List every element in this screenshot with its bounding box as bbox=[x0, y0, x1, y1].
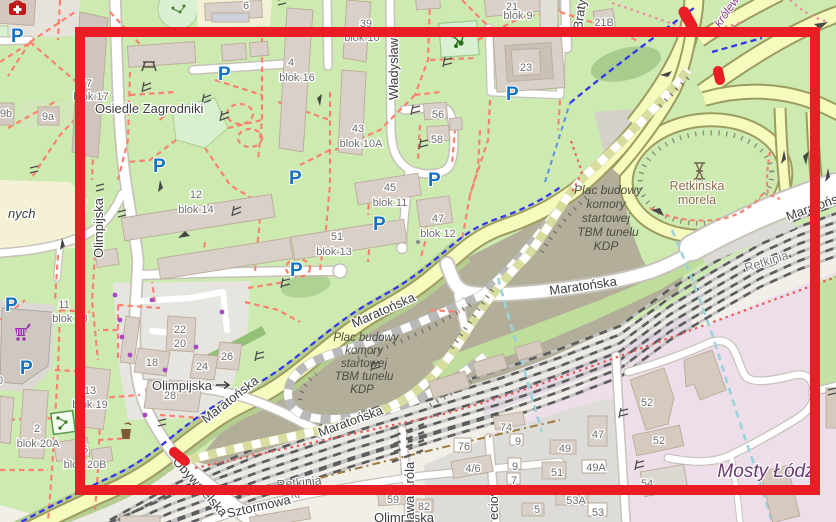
svg-text:P: P bbox=[428, 170, 441, 191]
svg-text:59: 59 bbox=[387, 494, 399, 506]
svg-text:Olimpijska: Olimpijska bbox=[91, 197, 106, 258]
svg-text:blok 10A: blok 10A bbox=[340, 138, 383, 150]
svg-text:Plac budowy: Plac budowy bbox=[333, 332, 399, 344]
svg-text:2: 2 bbox=[34, 423, 40, 435]
svg-text:23: 23 bbox=[520, 62, 532, 74]
svg-text:TBM tunelu: TBM tunelu bbox=[577, 225, 639, 239]
svg-text:Osiedle Zagrodniki: Osiedle Zagrodniki bbox=[95, 101, 203, 116]
svg-text:P: P bbox=[506, 84, 519, 105]
svg-text:52: 52 bbox=[641, 397, 653, 409]
svg-text:6: 6 bbox=[243, 0, 249, 12]
svg-text:9: 9 bbox=[512, 461, 518, 473]
svg-text:58: 58 bbox=[431, 134, 443, 146]
svg-text:P: P bbox=[20, 358, 33, 379]
svg-text:blok 13: blok 13 bbox=[316, 246, 351, 258]
svg-text:blok 14: blok 14 bbox=[178, 204, 213, 216]
svg-text:9a: 9a bbox=[42, 111, 55, 123]
svg-text:P: P bbox=[289, 168, 302, 189]
svg-text:P: P bbox=[11, 26, 24, 47]
svg-text:0: 0 bbox=[0, 375, 3, 387]
svg-text:47: 47 bbox=[592, 429, 604, 441]
svg-text:18: 18 bbox=[146, 357, 158, 369]
svg-text:12: 12 bbox=[190, 189, 202, 201]
svg-text:P: P bbox=[373, 214, 386, 235]
svg-text:13: 13 bbox=[84, 385, 96, 397]
svg-text:7: 7 bbox=[86, 78, 92, 90]
svg-text:blok 11: blok 11 bbox=[373, 197, 408, 209]
svg-text:45: 45 bbox=[384, 182, 396, 194]
svg-text:blok 12: blok 12 bbox=[420, 228, 455, 240]
svg-text:P: P bbox=[153, 156, 166, 177]
svg-text:26: 26 bbox=[221, 351, 233, 363]
svg-text:5: 5 bbox=[534, 504, 540, 516]
svg-text:Władysława: Władysława bbox=[386, 30, 401, 100]
svg-text:20: 20 bbox=[174, 338, 186, 350]
svg-text:56: 56 bbox=[432, 109, 444, 121]
svg-text:Mosty Łódź: Mosty Łódź bbox=[717, 461, 815, 482]
svg-text:43: 43 bbox=[352, 123, 364, 135]
svg-text:P: P bbox=[5, 295, 18, 316]
svg-text:Retkińska: Retkińska bbox=[670, 179, 725, 193]
svg-text:22: 22 bbox=[174, 324, 186, 336]
svg-text:11: 11 bbox=[58, 299, 69, 311]
svg-text:blok 20A: blok 20A bbox=[17, 438, 60, 450]
svg-text:47: 47 bbox=[432, 213, 444, 225]
svg-text:komory: komory bbox=[345, 345, 384, 357]
svg-text:53: 53 bbox=[592, 507, 604, 519]
svg-text:P: P bbox=[290, 260, 303, 281]
svg-text:9: 9 bbox=[515, 436, 521, 448]
svg-text:76: 76 bbox=[458, 441, 470, 453]
svg-text:74: 74 bbox=[500, 422, 512, 434]
svg-text:startowej: startowej bbox=[341, 358, 387, 370]
svg-text:53A: 53A bbox=[566, 495, 586, 507]
svg-text:52: 52 bbox=[653, 435, 665, 447]
svg-text:82: 82 bbox=[418, 501, 430, 513]
svg-text:49: 49 bbox=[559, 443, 571, 455]
svg-text:Plac budowy: Plac budowy bbox=[574, 183, 643, 197]
svg-text:28: 28 bbox=[164, 390, 176, 402]
svg-text:TBM tunelu: TBM tunelu bbox=[335, 371, 394, 383]
svg-text:51: 51 bbox=[331, 231, 343, 243]
svg-text:4: 4 bbox=[288, 57, 294, 69]
svg-text:nych: nych bbox=[8, 206, 35, 221]
svg-text:51: 51 bbox=[551, 467, 563, 479]
svg-text:komory: komory bbox=[586, 197, 626, 211]
svg-text:KDP: KDP bbox=[350, 384, 374, 396]
svg-text:startowej: startowej bbox=[582, 211, 630, 225]
svg-text:24: 24 bbox=[196, 361, 208, 373]
svg-text:P: P bbox=[218, 64, 231, 85]
svg-text:blok 16: blok 16 bbox=[279, 72, 314, 84]
svg-text:4/6: 4/6 bbox=[465, 463, 480, 475]
svg-text:blok 9: blok 9 bbox=[503, 10, 532, 22]
svg-text:KDP: KDP bbox=[594, 239, 619, 253]
svg-text:9b: 9b bbox=[0, 108, 12, 120]
svg-text:Olimpijska: Olimpijska bbox=[152, 378, 213, 393]
svg-text:49A: 49A bbox=[586, 462, 606, 474]
svg-text:morela: morela bbox=[678, 193, 716, 207]
